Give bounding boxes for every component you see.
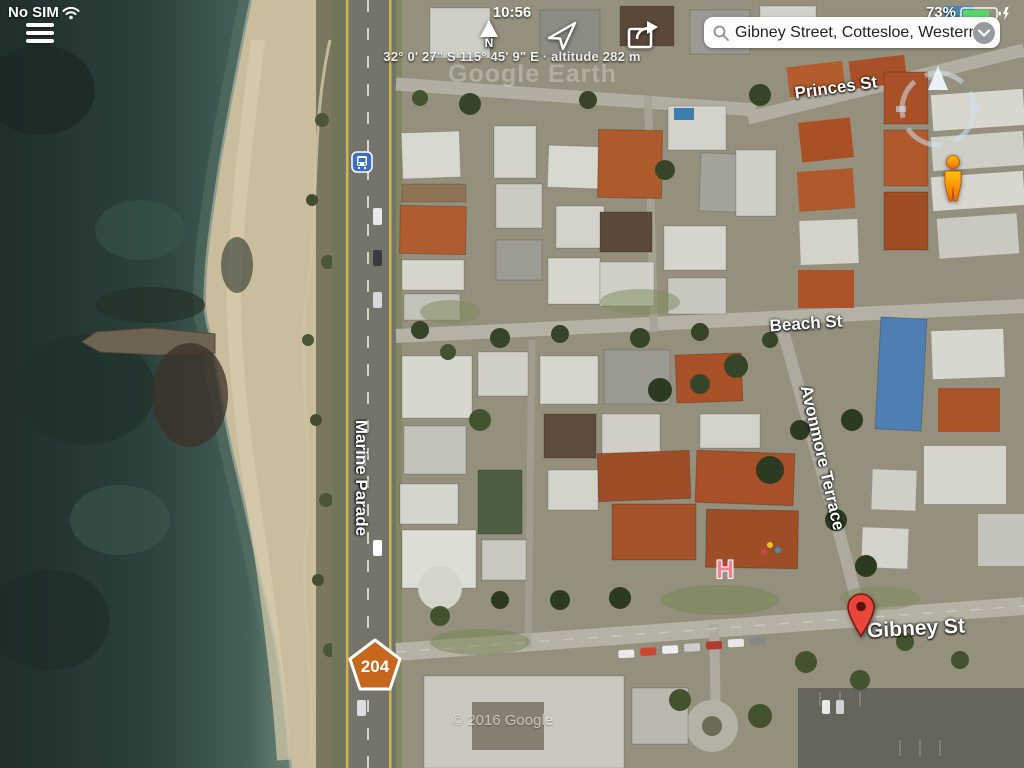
location-arrow-icon	[546, 20, 578, 52]
hamburger-icon	[26, 23, 54, 27]
hospital-marker: H	[716, 556, 734, 585]
street-label-gibney: Gibney St	[866, 614, 965, 643]
map-imagery	[0, 0, 1024, 768]
satellite-map-canvas[interactable]	[0, 0, 1024, 768]
search-icon	[713, 25, 729, 41]
search-bar[interactable]	[704, 17, 1000, 48]
street-label-marine-parade: Marine Parade	[351, 420, 371, 536]
location-pin[interactable]	[847, 593, 875, 638]
chevron-down-icon	[978, 29, 990, 37]
google-earth-watermark: Google Earth	[448, 60, 617, 89]
transit-stop-icon	[351, 151, 373, 173]
copyright-text: © 2016 Google	[452, 712, 553, 729]
route-number: 204	[348, 657, 402, 677]
menu-button[interactable]	[26, 23, 54, 43]
search-input[interactable]	[735, 24, 973, 42]
google-earth-app: Google Earth © 2016 Google Princes St Be…	[0, 0, 1024, 768]
share-icon	[626, 17, 660, 51]
north-arrow-icon	[480, 20, 498, 37]
coordinates-readout: 32° 0' 27" S 115° 45' 9" E · altitude 28…	[0, 49, 1024, 64]
north-label: N	[476, 37, 502, 49]
route-204-shield: 204	[348, 638, 402, 692]
north-arrow-button[interactable]: N	[476, 20, 502, 52]
compass[interactable]	[892, 62, 984, 154]
pegman-icon[interactable]	[942, 155, 964, 203]
search-dropdown-button[interactable]	[973, 22, 995, 44]
